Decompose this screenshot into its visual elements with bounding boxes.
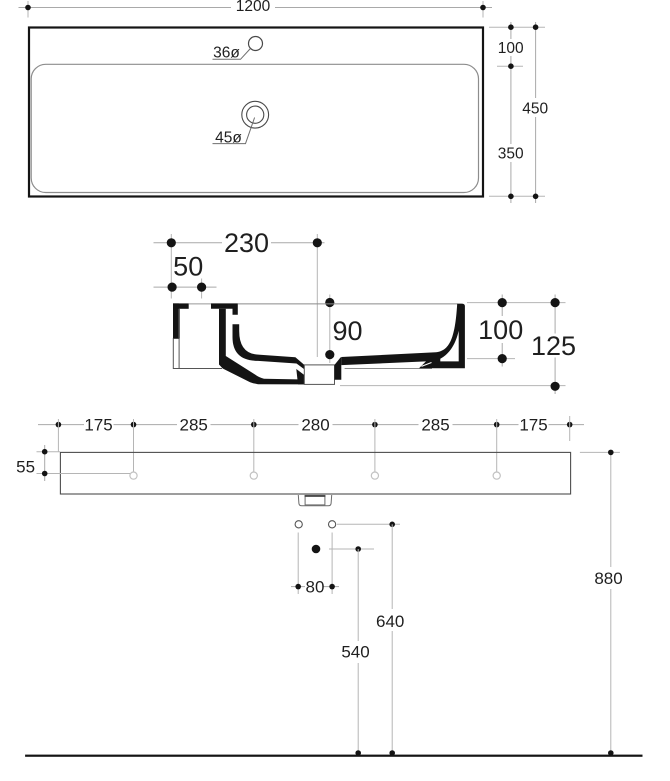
svg-text:285: 285 bbox=[180, 416, 208, 435]
svg-text:350: 350 bbox=[498, 146, 524, 163]
svg-text:175: 175 bbox=[84, 416, 112, 435]
svg-text:280: 280 bbox=[301, 416, 329, 435]
svg-text:880: 880 bbox=[594, 569, 622, 588]
svg-text:175: 175 bbox=[519, 416, 547, 435]
svg-text:36ø: 36ø bbox=[213, 44, 240, 61]
svg-text:540: 540 bbox=[341, 643, 369, 662]
svg-text:640: 640 bbox=[376, 612, 404, 631]
svg-text:1200: 1200 bbox=[236, 0, 271, 15]
svg-text:125: 125 bbox=[531, 331, 576, 361]
svg-text:55: 55 bbox=[16, 458, 35, 477]
svg-text:450: 450 bbox=[522, 100, 548, 117]
svg-text:100: 100 bbox=[498, 40, 524, 57]
svg-text:90: 90 bbox=[333, 316, 363, 346]
svg-text:100: 100 bbox=[478, 315, 523, 345]
svg-text:50: 50 bbox=[173, 252, 203, 282]
svg-text:230: 230 bbox=[224, 228, 269, 258]
svg-text:285: 285 bbox=[421, 416, 449, 435]
svg-text:80: 80 bbox=[306, 577, 325, 596]
